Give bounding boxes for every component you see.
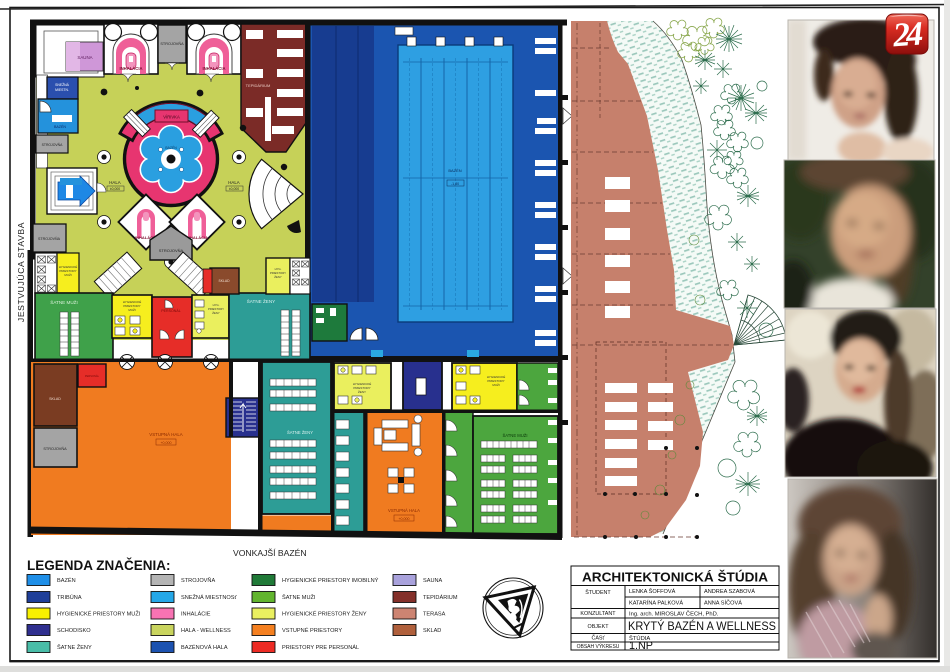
svg-text:KRYTÝ BAZÉN A WELLNESS: KRYTÝ BAZÉN A WELLNESS [628,620,776,633]
svg-text:SAUNA: SAUNA [423,578,443,584]
svg-text:MIESTN.: MIESTN. [55,88,69,92]
svg-text:HALA - WELLNESS: HALA - WELLNESS [181,628,231,634]
svg-text:ŠTUDENT: ŠTUDENT [585,589,611,596]
svg-text:ANNA SÍČOVÁ: ANNA SÍČOVÁ [704,600,742,607]
svg-text:ANDREA SZABOVÁ: ANDREA SZABOVÁ [704,588,755,595]
svg-text:MUŽI: MUŽI [64,272,71,277]
svg-text:INHALÁCIA: INHALÁCIA [119,66,142,71]
svg-text:PRIESTORY PRE PERSONÁL: PRIESTORY PRE PERSONÁL [282,644,359,651]
svg-text:SCHODISKO: SCHODISKO [57,628,91,634]
svg-text:ŠATNE ŽENY: ŠATNE ŽENY [57,643,92,651]
svg-text:HALA: HALA [228,180,240,185]
svg-text:INHALÁCIA: INHALÁCIA [202,66,225,71]
svg-text:TEPIDÁRIUM: TEPIDÁRIUM [246,83,271,88]
svg-text:VÍRIVKA: VÍRIVKA [163,115,180,120]
svg-text:OBJEKT: OBJEKT [588,624,610,630]
svg-text:HYGIENICKÉ PRIESTORY MUŽI: HYGIENICKÉ PRIESTORY MUŽI [57,610,141,618]
svg-text:ŽENY: ŽENY [212,310,220,315]
svg-text:±0,000: ±0,000 [110,187,120,191]
svg-text:HYGIENICKÉ PRIESTORY ŽENY: HYGIENICKÉ PRIESTORY ŽENY [282,610,367,618]
svg-text:-1,80: -1,80 [451,182,459,186]
svg-text:±0,000: ±0,000 [229,187,239,191]
svg-text:ČASť: ČASť [591,635,605,642]
svg-text:ŠATNE MUŽI: ŠATNE MUŽI [50,298,77,305]
svg-text:LEGENDA ZNAČENIA:: LEGENDA ZNAČENIA: [27,558,171,573]
svg-text:ŽENY: ŽENY [358,389,366,394]
svg-text:ARCHITEKTONICKÁ ŠTÚDIA: ARCHITEKTONICKÁ ŠTÚDIA [582,570,768,585]
svg-text:ŠATNE ŽENY: ŠATNE ŽENY [247,297,276,304]
svg-text:STROJOVŇA: STROJOVŇA [38,237,61,241]
svg-text:1.NP: 1.NP [629,640,653,652]
svg-text:ŠATNE MUŽI: ŠATNE MUŽI [282,593,316,601]
svg-text:Ing. arch. MIROSLAV ČECH, PhD.: Ing. arch. MIROSLAV ČECH, PhD. [629,611,719,618]
svg-text:JESTVUJÚCA STAVBA: JESTVUJÚCA STAVBA [16,222,26,322]
svg-text:STROJOVŇA: STROJOVŇA [43,446,67,451]
svg-text:PERSONÁL: PERSONÁL [161,309,181,313]
svg-text:+0,000: +0,000 [398,517,409,521]
svg-text:KONZULTANT: KONZULTANT [580,611,616,617]
svg-text:MUŽI: MUŽI [128,307,135,312]
svg-text:ŽENY: ŽENY [274,274,282,279]
svg-text:+0,000: +0,000 [160,441,171,445]
svg-text:VSTUPNÁ HALA: VSTUPNÁ HALA [388,508,420,513]
svg-text:STROJOVŇA: STROJOVŇA [159,248,184,253]
svg-text:KATARÍNA PALKOVÁ: KATARÍNA PALKOVÁ [629,600,683,607]
svg-text:PERSONÁL: PERSONÁL [85,374,100,378]
svg-text:INHALÁCIE: INHALÁCIE [181,611,211,618]
svg-text:SAUNA: SAUNA [77,55,92,60]
svg-text:BAZÉN: BAZÉN [57,577,76,584]
svg-text:BAZÉN: BAZÉN [165,145,177,150]
svg-text:SKLAD: SKLAD [218,279,230,283]
svg-text:MUŽI: MUŽI [492,382,499,387]
svg-text:OBSAH VÝKRESU: OBSAH VÝKRESU [577,643,620,650]
svg-text:SNEŽNÁ: SNEŽNÁ [55,82,69,87]
svg-text:STROJOVŇA: STROJOVŇA [42,143,63,147]
svg-text:SKLAD: SKLAD [423,628,441,634]
svg-text:HYGIENICKÉ PRIESTORY IMOBILNÝ: HYGIENICKÉ PRIESTORY IMOBILNÝ [282,577,379,584]
svg-text:SKLAD: SKLAD [49,397,61,401]
svg-text:VONKAJŠÍ BAZÉN: VONKAJŠÍ BAZÉN [233,548,307,558]
svg-text:STROJOVŇA: STROJOVŇA [160,41,184,46]
svg-text:LENKA ŠOFFOVÁ: LENKA ŠOFFOVÁ [629,588,676,595]
svg-text:BAZÉNOVÁ HALA: BAZÉNOVÁ HALA [181,644,228,651]
svg-text:VSTUPNÉ PRIESTORY: VSTUPNÉ PRIESTORY [282,627,342,634]
svg-text:ŠATNE MUŽI: ŠATNE MUŽI [502,433,527,438]
svg-text:ŠATNE ŽENY: ŠATNE ŽENY [287,430,313,435]
svg-text:VSTUPNÁ HALA: VSTUPNÁ HALA [149,432,182,437]
svg-text:SNEŽNÁ MIESTNOSť: SNEŽNÁ MIESTNOSť [181,593,237,601]
svg-text:HALA: HALA [109,180,121,185]
svg-text:TRIBÚNA: TRIBÚNA [57,594,82,601]
svg-text:BAZÉN: BAZÉN [54,124,66,129]
svg-text:TERASA: TERASA [423,612,446,618]
svg-text:BAZÉN: BAZÉN [448,168,461,173]
svg-text:TEPIDÁRIUM: TEPIDÁRIUM [423,594,458,601]
svg-text:STROJOVŇA: STROJOVŇA [181,577,215,584]
